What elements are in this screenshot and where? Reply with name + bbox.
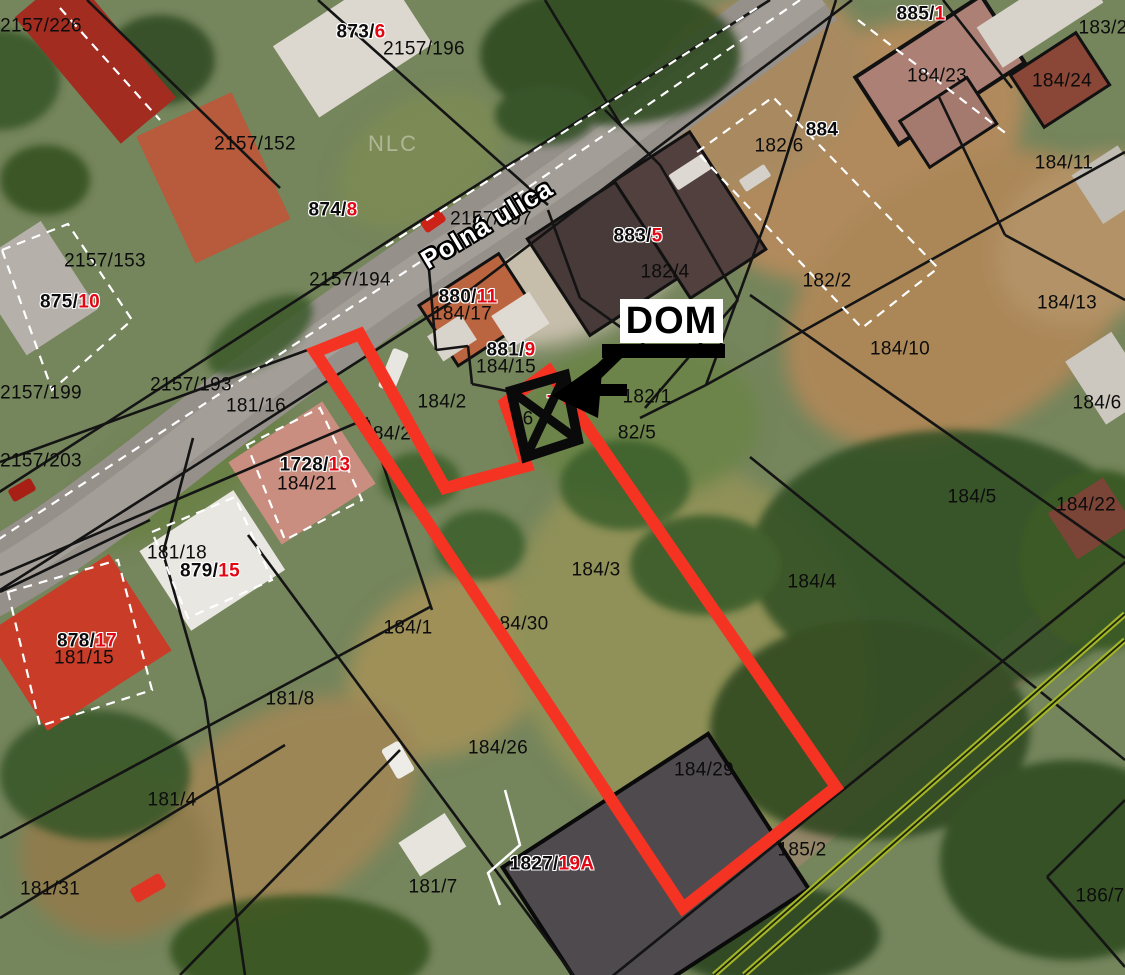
cadastral-map-viewport[interactable]: 2157/226873/62157/196885/1183/2184/23184… (0, 0, 1125, 975)
dom-underline-bar (602, 344, 725, 358)
dom-label: DOM (620, 299, 723, 343)
annotation-layer (0, 0, 1125, 975)
